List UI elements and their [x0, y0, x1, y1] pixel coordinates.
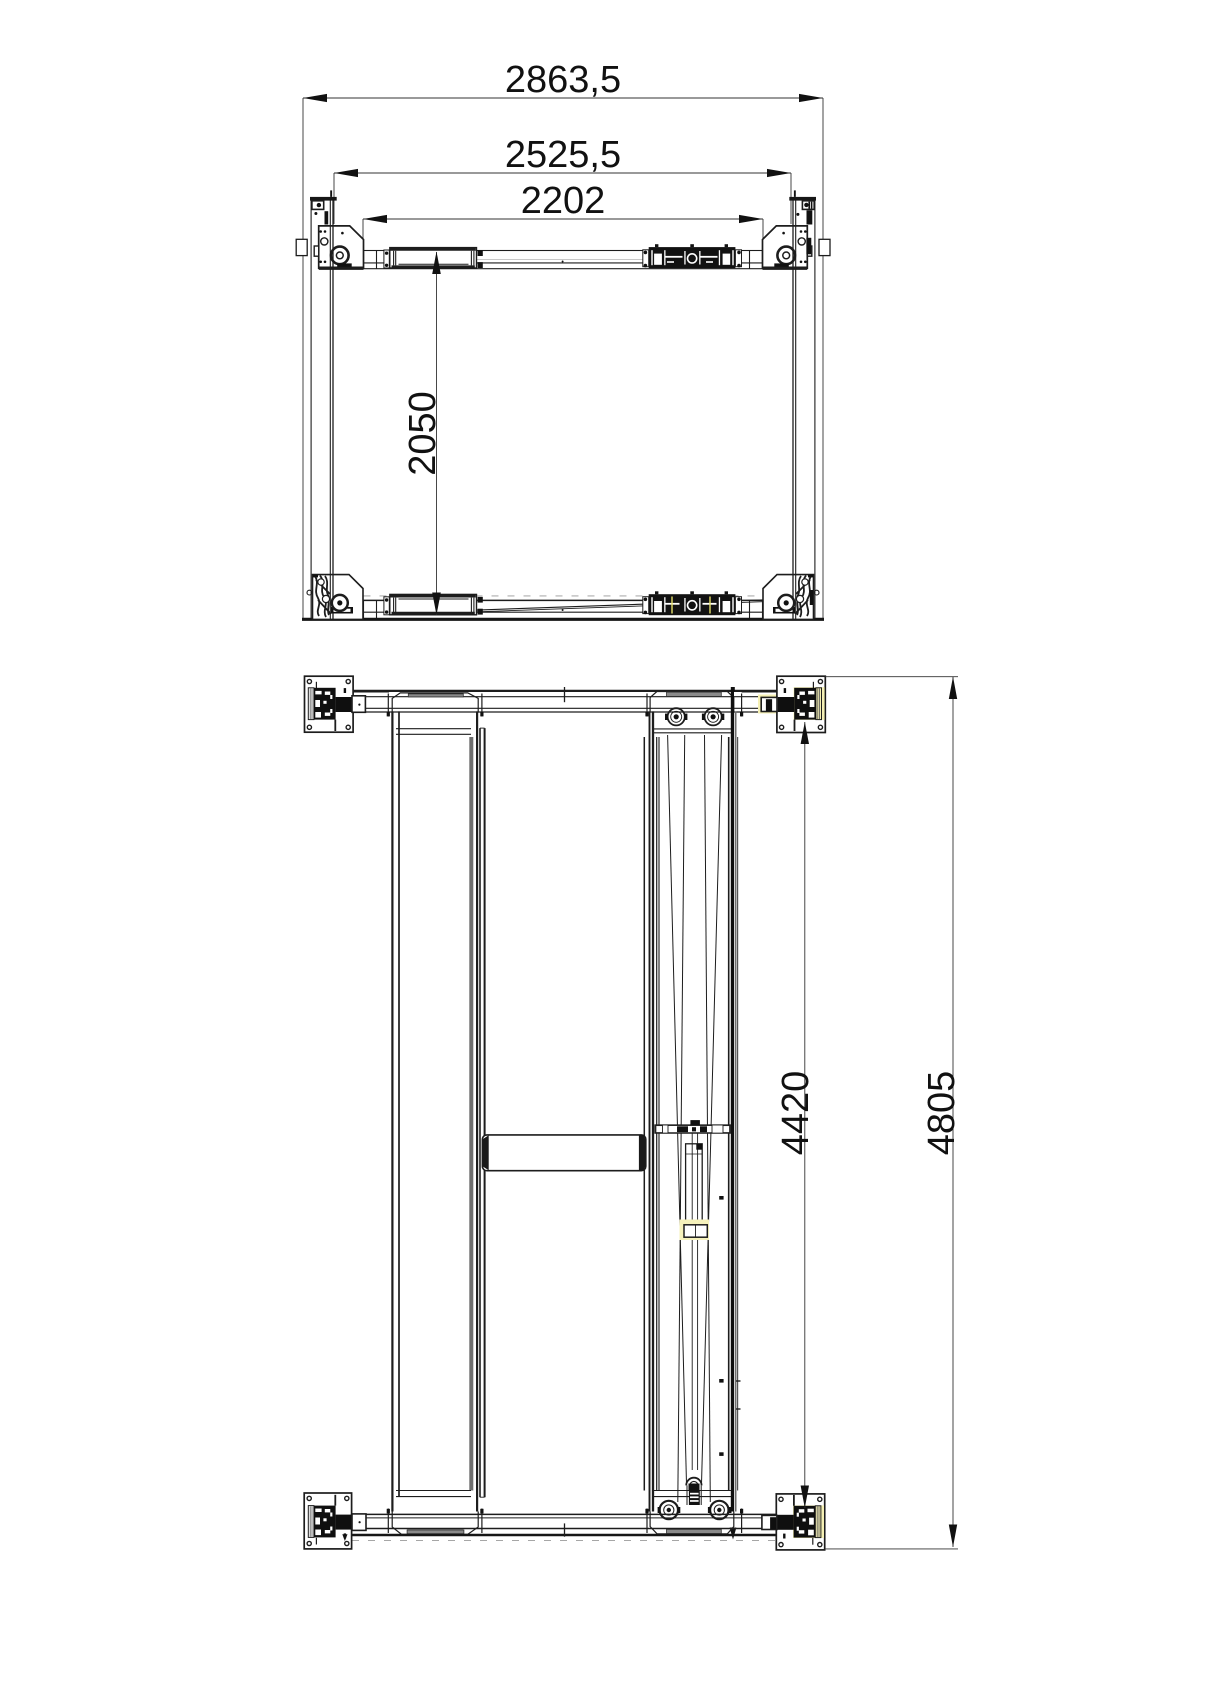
- svg-text:2202: 2202: [521, 180, 606, 222]
- svg-text:4420: 4420: [775, 1071, 817, 1156]
- svg-text:2525,5: 2525,5: [505, 134, 621, 176]
- svg-text:2050: 2050: [402, 391, 444, 476]
- svg-text:4805: 4805: [921, 1071, 963, 1156]
- svg-text:2863,5: 2863,5: [505, 59, 621, 101]
